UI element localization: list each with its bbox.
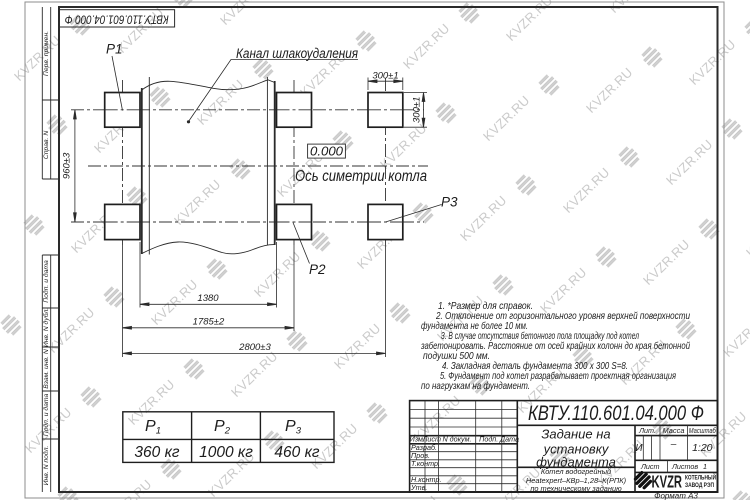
svg-text:Т.контр.: Т.контр.	[411, 459, 440, 468]
svg-text:460 кг: 460 кг	[274, 444, 319, 461]
svg-text:1: 1	[703, 462, 707, 471]
svg-text:КОТЕЛЬНЫЙ: КОТЕЛЬНЫЙ	[685, 474, 716, 482]
svg-text:KVZR: KVZR	[652, 472, 683, 492]
svg-text:300±1: 300±1	[412, 97, 423, 123]
svg-text:0.000: 0.000	[310, 144, 344, 159]
svg-text:N докум.: N докум.	[442, 435, 471, 444]
svg-text:Подп. и дата: Подп. и дата	[42, 394, 50, 437]
svg-text:Масштаб: Масштаб	[689, 426, 717, 435]
svg-text:Ось симетрии котла: Ось симетрии котла	[295, 168, 427, 185]
svg-text:1:20: 1:20	[692, 442, 713, 454]
svg-text:Р2: Р2	[309, 262, 326, 277]
svg-text:Лит.: Лит.	[638, 426, 656, 435]
svg-text:Лист: Лист	[640, 462, 660, 471]
svg-text:Масса: Масса	[663, 426, 685, 435]
svg-text:Взам. инв. N: Взам. инв. N	[43, 349, 50, 389]
svg-text:Задание на: Задание на	[541, 427, 610, 442]
svg-text:Подп. и дата: Подп. и дата	[42, 260, 50, 303]
svg-text:Р3: Р3	[441, 195, 458, 210]
svg-text:360 кг: 360 кг	[134, 444, 179, 461]
svg-text:1000 кг: 1000 кг	[199, 444, 253, 461]
svg-text:Канал шлакоудаления: Канал шлакоудаления	[236, 46, 358, 61]
svg-text:Перв. примен.: Перв. примен.	[43, 31, 50, 76]
svg-text:Формат А3: Формат А3	[654, 492, 698, 500]
svg-text:960±3: 960±3	[62, 152, 73, 179]
svg-text:Листов: Листов	[671, 462, 698, 471]
svg-text:КВТУ.110.601.04.000 Ф: КВТУ.110.601.04.000 Ф	[65, 12, 169, 24]
svg-text:Р1: Р1	[106, 42, 123, 57]
svg-text:Дата: Дата	[499, 435, 519, 444]
svg-text:И: И	[635, 443, 643, 454]
svg-text:Котел водогрейный: Котел водогрейный	[541, 467, 611, 476]
svg-text:по нагрузкам на фундамент.: по нагрузкам на фундамент.	[421, 380, 530, 392]
svg-text:Инв. N подл.: Инв. N подл.	[42, 446, 50, 486]
svg-text:1785±2: 1785±2	[193, 317, 225, 328]
svg-text:1380: 1380	[197, 293, 219, 304]
svg-text:Подп.: Подп.	[479, 435, 498, 444]
svg-text:по техническому заданию: по техническому заданию	[530, 484, 622, 493]
svg-text:Инв. N дубл.: Инв. N дубл.	[42, 308, 50, 347]
svg-text:ЗАВОД РЭП: ЗАВОД РЭП	[685, 483, 714, 489]
svg-text:Утв.: Утв.	[410, 483, 427, 492]
svg-text:–: –	[670, 439, 677, 450]
svg-text:КВТУ.110.601.04.000 Ф: КВТУ.110.601.04.000 Ф	[528, 402, 704, 425]
svg-text:2800±3: 2800±3	[238, 342, 271, 353]
svg-text:300±1: 300±1	[372, 71, 398, 82]
svg-text:Справ. N: Справ. N	[43, 131, 50, 160]
